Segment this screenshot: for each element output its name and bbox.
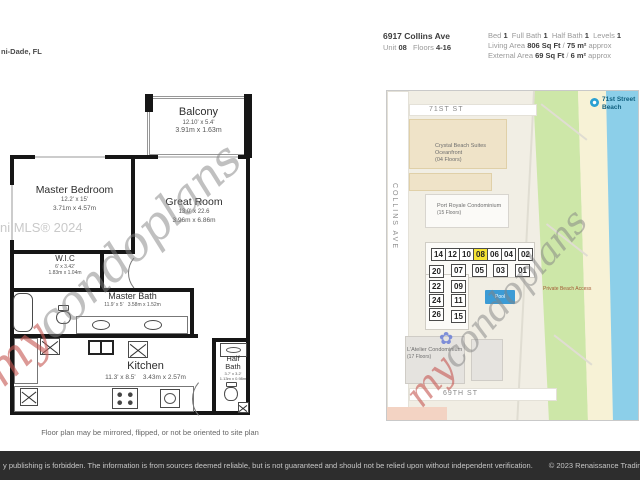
great-room-dim-metric: 3.96m x 6.86m: [144, 217, 244, 225]
county-state-label: ni-Dade, FL: [1, 47, 42, 56]
unit-floors-line: Unit 08 Floors 4-16: [383, 43, 451, 52]
unit-label: Unit: [383, 43, 396, 52]
balcony-dim-metric: 3.91m x 1.63m: [147, 127, 250, 136]
mls-watermark: ni MLS® 2024: [0, 220, 83, 235]
master-bedroom-name: Master Bedroom: [22, 184, 127, 197]
living-area-approx: approx: [589, 41, 612, 50]
crystal-line1: Crystal Beach Suites: [435, 143, 486, 150]
beach-label: 71st Street Beach: [602, 96, 635, 112]
crystal-line3: (04 Floors): [435, 157, 486, 164]
property-specs: Bed 1 Full Bath 1 Half Bath 1 Levels 1 L…: [488, 31, 640, 61]
unit-box-09: 09: [451, 280, 466, 293]
unit-box-02: 02: [518, 248, 533, 261]
unit-box-01: 01: [515, 264, 530, 277]
room-label-half-bath: Half Bath 3.7' x 3.2' 1.13m x 0.98m: [216, 355, 250, 383]
interior-wall: [212, 338, 250, 342]
master-bath-dims: 11.9' x 5' 3.58m x 1.52m: [70, 302, 195, 308]
address-title: 6917 Collins Ave: [383, 31, 450, 41]
footer-copyright: © 2023 Renaissance Trading C: [549, 461, 640, 470]
kitchen-counter: [14, 338, 38, 384]
unit-box-24: 24: [429, 294, 444, 307]
master-bath-dim-imperial: 11.9' x 5': [104, 302, 123, 308]
unit-box-22: 22: [429, 280, 444, 293]
great-room-dim-imperial: 13.0' x 22.6: [144, 209, 244, 217]
half-bath-label: Half Bath: [552, 31, 583, 40]
external-area-approx: approx: [588, 51, 611, 60]
footer-line: y publishing is forbidden. The informati…: [3, 461, 640, 470]
kitchen-dim-metric: 3.43m x 2.57m: [143, 374, 186, 381]
appliance-icon: [128, 341, 148, 358]
sink-icon: [144, 320, 162, 330]
port-line1: Port Royale Condominium: [437, 203, 501, 210]
building-tan: [409, 173, 492, 191]
washer-icon: [20, 388, 38, 406]
kitchen-sink-icon: [88, 340, 114, 355]
unit-box-12: 12: [445, 248, 460, 261]
unit-box-15: 15: [451, 310, 466, 323]
specs-line-1: Bed 1 Full Bath 1 Half Bath 1 Levels 1: [488, 31, 640, 41]
unit-box-06: 06: [487, 248, 502, 261]
half-bath-dim-metric: 1.13m x 0.98m: [219, 378, 246, 382]
specs-line-3: External Area 69 Sq Ft / 6 m² approx: [488, 51, 640, 61]
trillium-logo-icon: ✿: [439, 329, 453, 349]
building-latelier: [471, 339, 503, 381]
building-label-port-royale: Port Royale Condominium (15 Floors): [437, 203, 501, 217]
balcony-name: Balcony: [147, 106, 250, 120]
living-area-label: Living Area: [488, 41, 525, 50]
footer-disclaimer: y publishing is forbidden. The informati…: [3, 461, 533, 470]
building-label-latelier: L'Atelier Condominium (17 Floors): [407, 347, 462, 361]
unit-box-08-highlighted: 08: [473, 248, 488, 261]
building-label-crystal: Crystal Beach Suites Oceanfront (04 Floo…: [435, 143, 486, 164]
unit-box-10: 10: [459, 248, 474, 261]
floors-value: 4-16: [436, 43, 451, 52]
beach-icon: [590, 98, 599, 107]
external-area-metric: 6 m²: [571, 51, 586, 60]
unit-box-14: 14: [431, 248, 446, 261]
beach-label-line1: 71st Street: [602, 96, 635, 104]
crystal-line2: Oceanfront: [435, 150, 486, 157]
kitchen-dim-imperial: 11.3' x 8.5': [105, 374, 136, 381]
balcony-dim-imperial: 12.10' x 5.4': [147, 120, 250, 128]
washer-icon: [238, 402, 249, 413]
half-bath-value: 1: [585, 31, 589, 40]
master-bath-name: Master Bath: [70, 291, 195, 302]
bed-label: Bed: [488, 31, 501, 40]
latelier-line1: L'Atelier Condominium: [407, 347, 462, 354]
bathtub-icon: [13, 293, 33, 332]
window: [35, 155, 105, 159]
unit-box-04: 04: [501, 248, 516, 261]
building-pink: [387, 407, 447, 421]
levels-value: 1: [617, 31, 621, 40]
room-label-master-bedroom: Master Bedroom 12.2' x 15' 3.71m x 4.57m: [22, 184, 127, 213]
toilet-icon: [56, 311, 71, 324]
beach-label-line2: Beach: [602, 104, 635, 112]
street-label-69th: 69TH ST: [443, 390, 478, 397]
pool-label: Pool: [495, 294, 505, 300]
external-area-label: External Area: [488, 51, 533, 60]
page: { "page": { "location": "ni-Dade, FL", "…: [0, 0, 640, 480]
latelier-line2: (17 Floors): [407, 354, 462, 361]
footer-bar: y publishing is forbidden. The informati…: [0, 451, 640, 480]
unit-box-11: 11: [451, 294, 466, 307]
room-label-great-room: Great Room 13.0' x 22.6 3.96m x 6.86m: [144, 196, 244, 225]
unit-box-05: 05: [472, 264, 487, 277]
sink-icon: [92, 320, 110, 330]
room-label-kitchen: Kitchen 11.3' x 8.5' 3.43m x 2.57m: [88, 360, 203, 382]
toilet-icon: [224, 387, 238, 401]
door-arc: [128, 252, 164, 294]
bed-value: 1: [503, 31, 507, 40]
specs-line-2: Living Area 806 Sq Ft / 75 m² approx: [488, 41, 640, 51]
street-label-collins: COLLINS AVE: [391, 183, 398, 250]
unit-box-07: 07: [451, 264, 466, 277]
levels-label: Levels: [593, 31, 615, 40]
room-label-master-bath: Master Bath 11.9' x 5' 3.58m x 1.52m: [70, 291, 195, 309]
round-sink-icon: [160, 389, 180, 408]
master-bedroom-dim-metric: 3.71m x 4.57m: [22, 205, 127, 213]
living-area-separator: /: [563, 41, 565, 50]
wic-name: W.I.C: [40, 254, 90, 264]
street-label-71st: 71ST ST: [429, 106, 464, 113]
unit-value: 08: [398, 43, 406, 52]
master-bedroom-dim-imperial: 12.2' x 15': [22, 197, 127, 205]
floors-label: Floors: [413, 43, 434, 52]
appliance-icon: [40, 338, 60, 355]
half-bath-name-line2: Bath: [216, 363, 250, 371]
external-area-value: 69 Sq Ft: [535, 51, 564, 60]
floor-plan-note: Floor plan may be mirrored, flipped, or …: [10, 428, 290, 437]
room-label-balcony: Balcony 12.10' x 5.4' 3.91m x 1.63m: [147, 106, 250, 136]
living-area-metric: 75 m²: [567, 41, 587, 50]
site-map: 71ST ST COLLINS AVE 69TH ST Crystal Beac…: [386, 90, 639, 421]
full-bath-label: Full Bath: [512, 31, 542, 40]
room-label-wic: W.I.C 6' x 3.42' 1.83m x 1.04m: [40, 254, 90, 277]
private-beach-access-label: Private Beach Access: [543, 286, 591, 292]
master-bath-dim-metric: 3.58m x 1.52m: [128, 302, 161, 308]
unit-box-20: 20: [429, 265, 444, 278]
69th-street-road: [409, 388, 557, 401]
stove-icon: [112, 388, 138, 409]
pool-marker: Pool: [485, 290, 515, 304]
external-area-separator: /: [566, 51, 568, 60]
interior-wall: [100, 254, 104, 290]
great-room-name: Great Room: [144, 196, 244, 209]
interior-wall: [131, 157, 135, 254]
kitchen-name: Kitchen: [88, 360, 203, 374]
full-bath-value: 1: [544, 31, 548, 40]
wic-dim-metric: 1.83m x 1.04m: [40, 270, 90, 276]
interior-wall: [10, 334, 198, 338]
unit-box-26: 26: [429, 308, 444, 321]
living-area-value: 806 Sq Ft: [527, 41, 560, 50]
unit-box-03: 03: [493, 264, 508, 277]
kitchen-dims: 11.3' x 8.5' 3.43m x 2.57m: [88, 374, 203, 382]
sliding-door: [158, 155, 238, 159]
port-line2: (15 Floors): [437, 210, 501, 217]
